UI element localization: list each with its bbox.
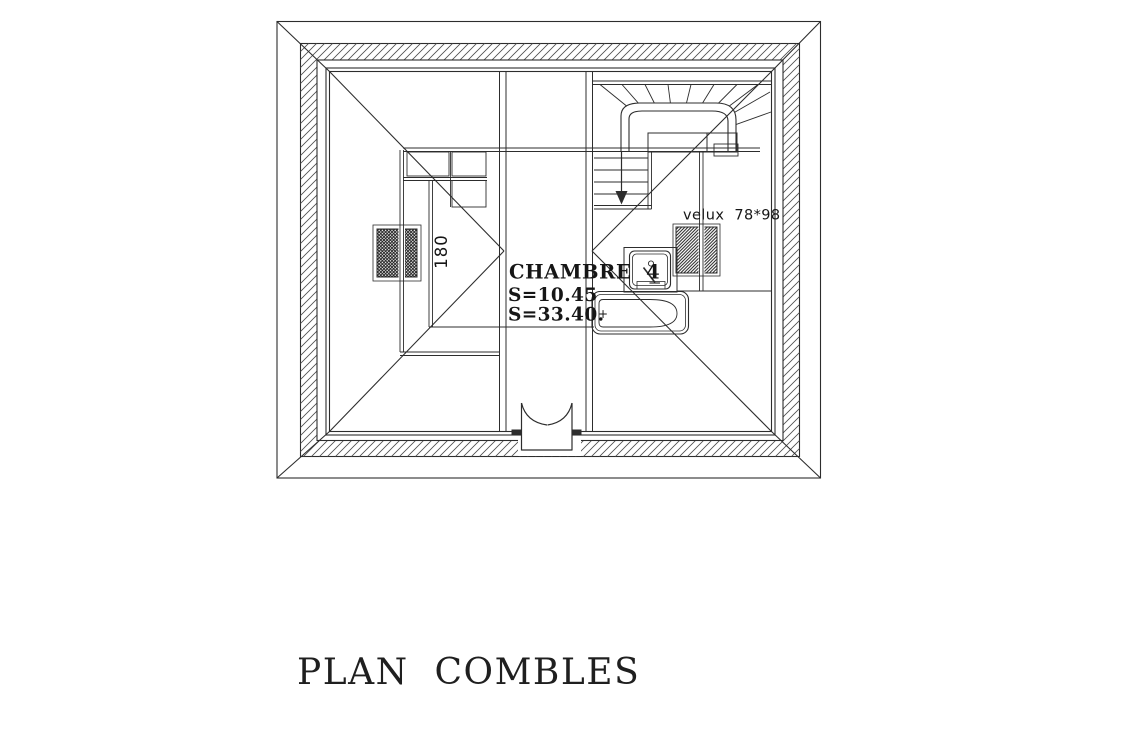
low-wall-line: [400, 352, 500, 356]
staircase: [593, 81, 772, 209]
room-label: CHAMBRE 4: [509, 261, 660, 284]
drawing-title: PLAN COMBLES: [297, 653, 640, 693]
stairwell-void: [621, 103, 736, 152]
stair-arrow-icon: [616, 191, 628, 205]
roof-and-walls: [277, 22, 821, 479]
roof-hip-lines: [277, 22, 821, 479]
hip-top-left: [330, 72, 505, 252]
closet-box-2: [452, 152, 486, 176]
velux-window-left: [373, 225, 421, 281]
plan-labels: CHAMBRE 4 S=10.45 S=33.40. + velux 78*98…: [432, 208, 780, 326]
roof-eave-outline: [277, 22, 821, 479]
velux-window-right: [673, 224, 720, 276]
title-block: PLAN COMBLES Projet Echelle 1/100: [297, 573, 640, 745]
hall-partition-walls: [500, 72, 593, 432]
ceiling-height-label: 180: [432, 234, 451, 269]
door-leaf-arc-left: [522, 403, 548, 425]
bathtub-basin: [599, 300, 677, 328]
door-leaf-arc-right: [548, 403, 573, 425]
surface-total-label: S=33.40.: [508, 305, 604, 326]
drawing-sheet: CHAMBRE 4 S=10.45 S=33.40. + velux 78*98…: [0, 0, 1129, 745]
point-marker: +: [598, 307, 608, 321]
surface-room-label: S=10.45: [508, 285, 598, 306]
velux-label: velux 78*98: [683, 208, 780, 224]
double-door: [512, 403, 582, 456]
hip-bottom-left: [330, 251, 505, 432]
door-jamb-left: [512, 430, 522, 436]
door-jamb-right: [572, 430, 582, 436]
